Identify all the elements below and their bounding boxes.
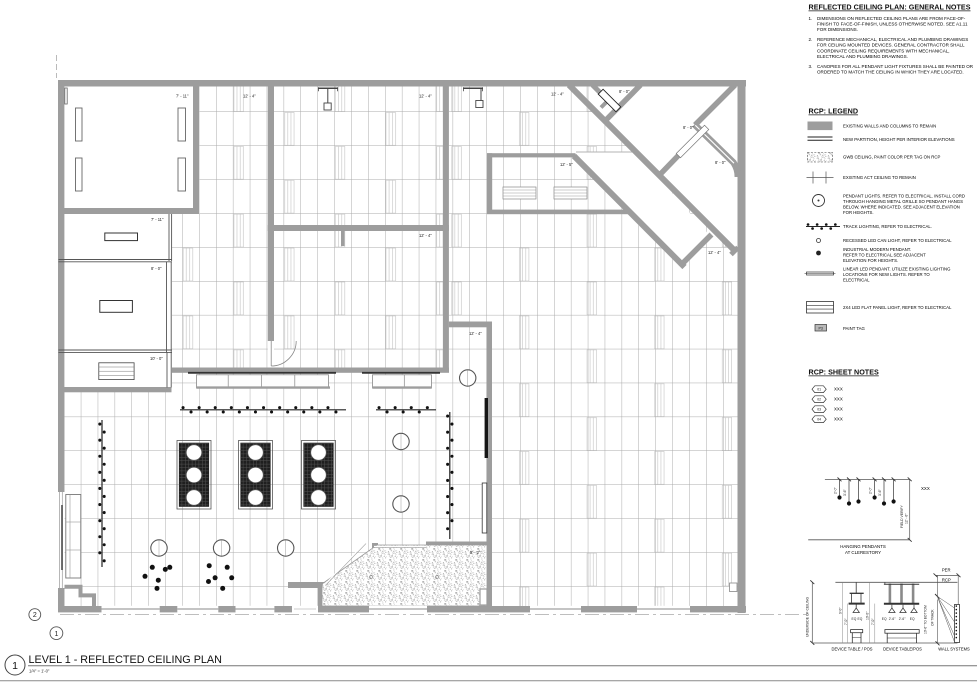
svg-text:XXX: XXX [834,407,843,412]
svg-text:9' - 2": 9' - 2" [470,550,481,555]
svg-text:12' - 6": 12' - 6" [905,513,909,524]
svg-text:OF TRACK: OF TRACK [931,609,935,626]
svg-text:1: 1 [54,631,58,638]
svg-text:EXISTING WALLS AND COLUMNS TO: EXISTING WALLS AND COLUMNS TO REMAIN [843,124,936,129]
svg-text:03: 03 [817,408,821,412]
svg-text:12' - 4": 12' - 4" [551,92,564,97]
svg-text:1: 1 [12,660,18,672]
svg-text:COORDINATE CEILING REQUIREMENT: COORDINATE CEILING REQUIREMENTS WITH MEC… [817,49,950,54]
svg-text:2.: 2. [809,37,813,42]
svg-text:04: 04 [817,418,821,422]
svg-text:12' - 4": 12' - 4" [708,250,721,255]
svg-text:UNDERSIDE OF CEILING: UNDERSIDE OF CEILING [806,597,810,637]
svg-text:3'-6": 3'-6" [878,488,882,496]
svg-text:FIELD VERIFY: FIELD VERIFY [900,504,904,528]
svg-text:REFERENCE MECHANICAL, ELECTRIC: REFERENCE MECHANICAL, ELECTRICAL AND PLU… [817,37,968,42]
svg-text:EQ: EQ [858,617,863,621]
svg-text:FOR CEILING MOUNTED DEVICES.: FOR CEILING MOUNTED DEVICES. GENERAL CON… [817,43,965,48]
svg-text:WALL SYSTEMS: WALL SYSTEMS [938,647,970,652]
svg-text:1.: 1. [809,16,813,21]
svg-text:2X4 LED FLAT PANEL LIGHT, REFE: 2X4 LED FLAT PANEL LIGHT, REFER TO ELECT… [843,305,952,310]
svg-text:AT CLERESTORY: AT CLERESTORY [845,550,881,555]
svg-text:RCP: SHEET NOTES: RCP: SHEET NOTES [809,368,879,377]
svg-text:ORDERED TO MATCH THE CEILING I: ORDERED TO MATCH THE CEILING IN WHICH TH… [817,70,964,75]
svg-text:FINISH TO FACE-OF-FINISH, UNLE: FINISH TO FACE-OF-FINISH, UNLESS OTHERWI… [817,22,968,27]
svg-text:BELOW, WHERE INDICATED. SEE AD: BELOW, WHERE INDICATED. SEE ADJACENT ELE… [843,205,960,210]
svg-text:7'-0": 7'-0" [871,618,875,625]
svg-text:FOR DIMENSIONS.: FOR DIMENSIONS. [817,27,858,32]
svg-text:3'-6": 3'-6" [843,488,847,496]
svg-text:02: 02 [817,398,821,402]
svg-text:2: 2 [33,612,37,619]
svg-text:FOR HEIGHTS.: FOR HEIGHTS. [843,210,874,215]
svg-text:12' - 4": 12' - 4" [469,331,482,336]
svg-text:DEVICE TABLE / POS: DEVICE TABLE / POS [831,647,872,652]
svg-text:ELECTRICAL AND PLUMBING DRAWIN: ELECTRICAL AND PLUMBING DRAWINGS. [817,54,908,59]
svg-text:2'-0": 2'-0" [834,486,838,494]
svg-text:REFER TO ELECTRICAL.SEE ADJACE: REFER TO ELECTRICAL.SEE ADJACENT [843,253,926,258]
svg-text:01: 01 [817,388,821,392]
svg-text:TRACK LIGHTING, REFER TO ELECT: TRACK LIGHTING, REFER TO ELECTRICAL. [843,224,932,229]
svg-text:INDUSTRIAL MODERN PENDANT.: INDUSTRIAL MODERN PENDANT. [843,247,911,252]
svg-text:EQ: EQ [910,617,915,621]
svg-text:ELECTRICAL: ELECTRICAL [843,278,870,283]
svg-text:8' - 0": 8' - 0" [683,125,694,130]
svg-text:3.: 3. [809,64,813,69]
svg-text:HANGING PENDANTS: HANGING PENDANTS [840,544,886,549]
svg-text:10'-0": 10'-0" [866,611,870,620]
svg-text:RCP: LEGEND: RCP: LEGEND [809,107,859,116]
svg-text:8' - 0": 8' - 0" [715,160,726,165]
svg-text:2'-6": 2'-6" [889,617,896,621]
svg-text:THROUGH HANGING METAL GRILLE S: THROUGH HANGING METAL GRILLE SO PENDANT … [843,199,963,204]
svg-text:DEVICE TABLE/POS: DEVICE TABLE/POS [883,647,922,652]
svg-text:12' - 4": 12' - 4" [419,233,432,238]
svg-text:PENDANT LIGHTS. REFER TO ELECT: PENDANT LIGHTS. REFER TO ELECTRICAL. INS… [843,194,965,199]
svg-text:2'-0": 2'-0" [869,486,873,494]
svg-text:1/4" = 1'-0": 1/4" = 1'-0" [29,669,50,674]
svg-text:10'-6" TO BOTTOM: 10'-6" TO BOTTOM [924,605,928,634]
svg-text:12' - 4": 12' - 4" [419,94,432,99]
svg-text:7' - 11": 7' - 11" [151,217,164,222]
svg-text:10' - 0": 10' - 0" [150,356,163,361]
svg-text:ELEVATION FOR HEIGHTS.: ELEVATION FOR HEIGHTS. [843,258,898,263]
svg-text:PER: PER [942,568,951,573]
svg-text:EQ: EQ [882,617,887,621]
svg-text:DIMENSIONS ON REFLECTED CEILIN: DIMENSIONS ON REFLECTED CEILING PLANS AR… [817,16,966,21]
svg-text:12' - 5": 12' - 5" [560,162,573,167]
svg-text:GWB CEILING, PAINT COLOR PER T: GWB CEILING, PAINT COLOR PER TAG ON RCP [843,155,940,160]
svg-text:PAINT TAG: PAINT TAG [843,326,866,331]
svg-text:LEVEL 1 - REFLECTED CEILING PL: LEVEL 1 - REFLECTED CEILING PLAN [29,654,222,666]
svg-text:XXX: XXX [834,397,843,402]
svg-text:12' - 4": 12' - 4" [243,94,256,99]
svg-text:7' - 11": 7' - 11" [176,94,189,99]
svg-text:CANOPIES FOR ALL PENDANT LIGHT: CANOPIES FOR ALL PENDANT LIGHT FIXTURES … [817,64,974,69]
svg-text:XXX: XXX [834,387,843,392]
svg-text:LINEAR LED PENDANT. UTILIZE EX: LINEAR LED PENDANT. UTILIZE EXISTING LIG… [843,267,951,272]
svg-text:8' - 0": 8' - 0" [151,266,162,271]
svg-text:XXX: XXX [834,417,843,422]
svg-text:NEW PARTITION, HEIGHT PER INTE: NEW PARTITION, HEIGHT PER INTERIOR ELEVA… [843,137,955,142]
svg-text:P3: P3 [818,327,822,331]
svg-text:8' - 0": 8' - 0" [619,89,630,94]
svg-text:RECESSED LED CAN LIGHT, REFER: RECESSED LED CAN LIGHT, REFER TO ELECTRI… [843,238,952,243]
svg-text:REFLECTED CEILING PLAN: GENERA: REFLECTED CEILING PLAN: GENERAL NOTES [809,3,971,12]
svg-text:2'-6": 2'-6" [899,617,906,621]
svg-text:RCP: RCP [942,578,951,583]
svg-text:7'-0": 7'-0" [844,618,848,625]
svg-text:9'-0": 9'-0" [839,607,843,614]
svg-text:XXX: XXX [921,486,930,491]
svg-text:EQ: EQ [852,617,857,621]
svg-text:EXISTING ACT CEILING TO REMAIN: EXISTING ACT CEILING TO REMAIN [843,175,916,180]
svg-text:LOCATIONS FOR NEW LIGHTS. REFE: LOCATIONS FOR NEW LIGHTS. REFER TO [843,272,930,277]
